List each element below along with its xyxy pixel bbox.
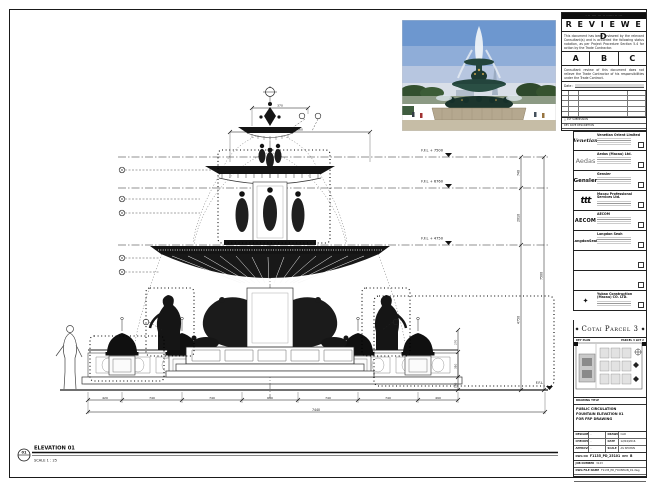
consultant-address xyxy=(597,138,631,145)
file-name-row: DWG FILE NAME F1135_PD_FOUNTAIN_01.dwg xyxy=(574,468,646,475)
dim-text: 270 xyxy=(454,339,458,345)
approved-value: - xyxy=(589,446,606,452)
consultant-checkbox[interactable] xyxy=(638,262,644,268)
consultant-checkbox[interactable] xyxy=(638,242,644,248)
dim-text: 4750 xyxy=(517,316,521,324)
drawing-sheet: F.F.L + 7500 F.F.L + 6760 F.F.L + 4750 F… xyxy=(0,0,650,488)
date-value: 12/04/2016 xyxy=(619,439,646,446)
project-title: Cotai Parcel 3 xyxy=(582,325,639,333)
review-stamp: · ·· ···· ··· ·· ······ ·· ··· R E V I E… xyxy=(561,12,647,131)
reference-row: REFERENCE DWG FILE NAME xyxy=(574,475,646,482)
consultant-checkbox[interactable] xyxy=(638,182,644,188)
consultant-name: Aedas (Macau) Ltd. xyxy=(597,153,646,157)
key-plan-parcel-label: PARCEL 3 LOT 2 xyxy=(621,339,644,342)
consultant-address xyxy=(597,177,631,184)
level-markers xyxy=(445,153,553,390)
drawn-label: DRAWN xyxy=(606,432,619,439)
drawing-title-line: FOR FRP DRAWING xyxy=(576,417,644,422)
consultant-name: Yubao Construction (Macau) CO. LTD. xyxy=(597,293,646,300)
dim-text: 160 xyxy=(454,382,458,388)
consultant-row: Venetian Venetian Orient Limited xyxy=(573,131,647,151)
aedas-logo: Aedas xyxy=(574,151,597,170)
consultant-address xyxy=(597,301,631,308)
dim-text: 740 xyxy=(385,396,391,400)
key-plan: KEY PLAN PARCEL 3 LOT 2 xyxy=(573,338,647,398)
consultant-checkbox[interactable] xyxy=(638,162,644,168)
stamp-title: R E V I E W E D xyxy=(562,19,646,32)
aecom-logo: AECOM xyxy=(574,211,597,230)
consultant-row-empty xyxy=(573,251,647,271)
consultant-name: Venetian Orient Limited xyxy=(597,134,646,138)
gensler-logo: Gensler xyxy=(574,171,597,190)
date-label: Date : xyxy=(564,84,573,88)
consultant-name: Macau Professional Services Ltd. xyxy=(597,193,646,200)
ornament-icon: ◆ xyxy=(575,326,578,331)
consultant-checkbox[interactable] xyxy=(638,142,644,148)
consultant-address xyxy=(597,217,631,224)
scale-label: SCALE xyxy=(606,446,619,452)
langdon-seah-logo: LangdonSeah xyxy=(574,231,597,250)
fountain-body xyxy=(150,88,390,378)
drawing-title: PUBLIC CIRCULATION FOUNTAIN ELEVATION 01… xyxy=(574,405,646,432)
consultant-checkbox[interactable] xyxy=(638,302,644,308)
level-label: F.F.L + 4750 xyxy=(421,237,443,241)
elevation-marker: 01 xyxy=(21,451,27,455)
dim-text: 2010 xyxy=(517,214,521,222)
venetian-logo: Venetian xyxy=(574,132,597,150)
consultant-name: AECOM xyxy=(597,213,646,217)
date-fill-line[interactable] xyxy=(575,84,644,89)
consultant-checkbox[interactable] xyxy=(638,282,644,288)
level-label: F.F.L + 7500 xyxy=(421,149,443,153)
consultant-row: ✦ Yubao Construction (Macau) CO. LTD. xyxy=(573,291,647,311)
dim-text: 490 xyxy=(435,396,441,400)
consultant-checkbox[interactable] xyxy=(638,222,644,228)
mps-logo: ttt xyxy=(574,191,597,210)
designed-label: DESIGNED xyxy=(574,432,589,439)
designed-value: - xyxy=(589,432,606,439)
level-label: F.F.L + 6760 xyxy=(421,180,443,184)
dim-text: 740 xyxy=(149,396,155,400)
stamp-paragraph: Consultant review of this document does … xyxy=(562,66,646,82)
job-number-row: JOB NUMBER 3123 xyxy=(574,461,646,468)
fountain-photo xyxy=(402,20,556,131)
drawing-title-label: DRAWING TITLE xyxy=(574,398,646,405)
approved-label: APPROVED xyxy=(574,446,589,452)
dim-text: 370 xyxy=(277,104,283,108)
dim-text: 420 xyxy=(102,396,108,400)
key-plan-label: KEY PLAN xyxy=(576,339,590,342)
dim-text: 660 xyxy=(297,128,303,132)
dim-text: 7440 xyxy=(312,408,320,412)
grade-c-box[interactable]: C xyxy=(619,52,646,65)
consultant-row-empty xyxy=(573,271,647,291)
consultant-address xyxy=(597,157,631,164)
job-number-value: 3123 xyxy=(596,461,603,467)
elevation-label: ELEVATION 01 xyxy=(34,446,75,452)
stamp-revision-table xyxy=(562,91,646,118)
checked-label: CHECKED xyxy=(574,439,589,446)
file-name-label: DWG FILE NAME xyxy=(576,468,600,474)
dim-text: 740 xyxy=(325,396,331,400)
consultant-row: ttt Macau Professional Services Ltd. xyxy=(573,191,647,211)
status-grade-row: A B C xyxy=(562,52,646,66)
rev-label: REV xyxy=(622,453,628,460)
grade-b-box[interactable]: B xyxy=(590,52,618,65)
dim-text: 740 xyxy=(517,170,521,176)
dwg-no-label: DWG NO xyxy=(576,453,588,460)
stamp-footer-row: REV DATE DESCRIPTION xyxy=(562,124,646,130)
dim-text: 740 xyxy=(209,396,215,400)
key-plan-map xyxy=(574,342,646,392)
consultant-address xyxy=(597,201,631,208)
stamp-paragraph: This document has been reviewed by the r… xyxy=(562,32,646,52)
dwg-no-row: DWG NO F1135_PD_25101 REV B xyxy=(574,453,646,461)
date-label: DATE xyxy=(606,439,619,446)
dim-text: 7500 xyxy=(540,272,544,280)
elevation-scale: SCALE 1 : 25 xyxy=(34,459,57,463)
consultant-row: Gensler Gensler xyxy=(573,171,647,191)
job-number-label: JOB NUMBER xyxy=(576,461,595,467)
consultant-name: Langdon Seah xyxy=(597,233,646,237)
reference-label: REFERENCE DWG FILE NAME xyxy=(576,475,617,481)
file-name-value: F1135_PD_FOUNTAIN_01.dwg xyxy=(601,468,639,474)
yubao-logo: ✦ xyxy=(574,291,597,310)
checked-value: - xyxy=(589,439,606,446)
level-label: F.F.L xyxy=(536,381,543,385)
scale-figure xyxy=(56,326,82,390)
dim-text: 690 xyxy=(267,396,273,400)
consultant-row: Aedas Aedas (Macau) Ltd. xyxy=(573,151,647,171)
title-block-fields: DESIGNED - DRAWN CAD CHECKED - DATE 12/0… xyxy=(574,432,646,453)
title-block: DRAWING TITLE PUBLIC CIRCULATION FOUNTAI… xyxy=(573,398,647,477)
drawn-value: CAD xyxy=(619,432,646,439)
rev-value: B xyxy=(630,453,632,460)
consultant-name: Gensler xyxy=(597,173,646,177)
elevation-title: 01 ELEVATION 01 SCALE 1 : 25 xyxy=(18,446,558,463)
scale-value: AS SHOWN xyxy=(619,446,646,452)
consultant-address xyxy=(597,237,631,244)
dwg-no-value: F1135_PD_25101 xyxy=(590,453,620,460)
consultant-checkbox[interactable] xyxy=(638,202,644,208)
project-title-band: ◆ Cotai Parcel 3 ◆ xyxy=(573,320,647,338)
dim-text: 310 xyxy=(454,363,458,369)
consultant-panel: Venetian Venetian Orient Limited Aedas A… xyxy=(573,131,647,311)
consultant-row: LangdonSeah Langdon Seah xyxy=(573,231,647,251)
consultant-row: AECOM AECOM xyxy=(573,211,647,231)
ornament-icon: ◆ xyxy=(641,326,644,331)
grade-a-box[interactable]: A xyxy=(562,52,590,65)
